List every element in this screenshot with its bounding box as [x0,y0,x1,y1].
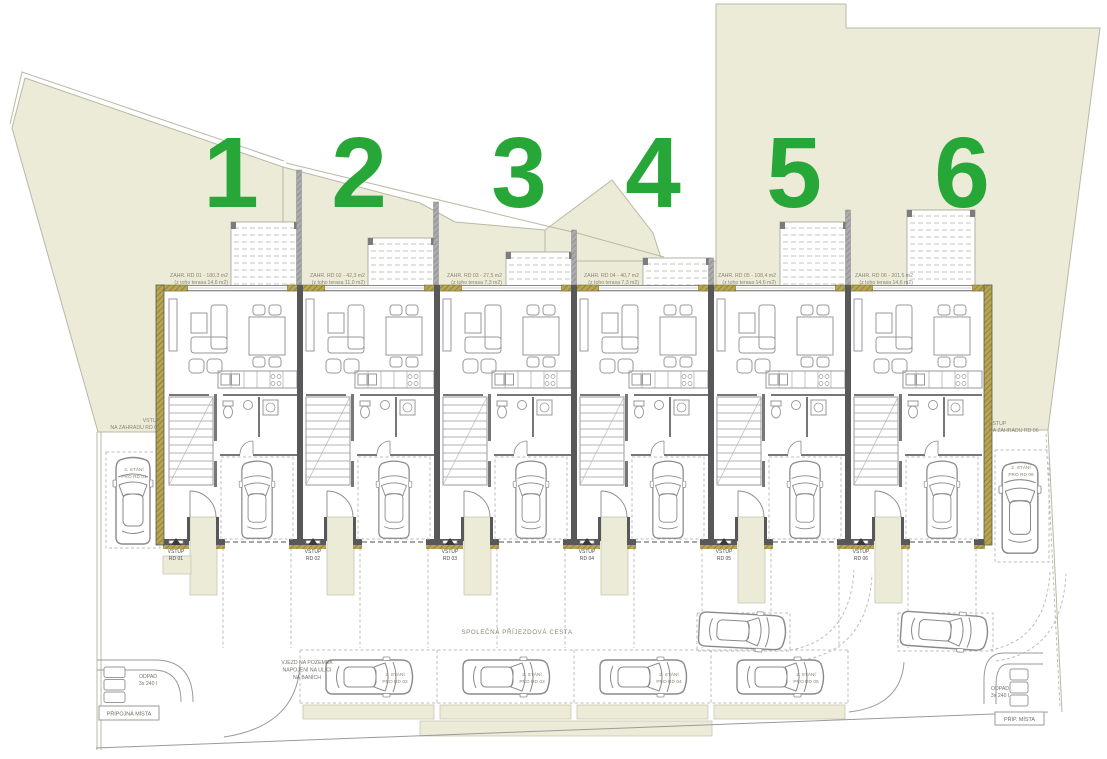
car-topview [650,461,686,538]
svg-text:RD 03: RD 03 [443,556,457,562]
svg-text:PRO RD 03: PRO RD 03 [519,679,545,685]
site-plan-canvas: SPOLEČNÁ PŘÍJEZDOVÁ CESTA PŘÍPOJNÁ MÍSTA… [0,0,1107,759]
svg-text:NAPOJENÍ NA ULICI: NAPOJENÍ NA ULICI [282,667,331,674]
waste-label-right: ODPAD3x 240 l [991,686,1009,699]
garden-area-label-rd-01: ZAHR. RD 01 - 180,3 m2(z toho terasa 14,… [170,273,228,286]
garden-area-label-rd-06: ZAHR. RD 06 - 201,5 m2(z toho terasa 14,… [855,273,913,286]
svg-text:2. STÁNÍ: 2. STÁNÍ [385,671,405,678]
svg-text:RD 01: RD 01 [169,556,183,562]
house-unit-rd-06 [848,285,985,603]
svg-text:ZAHR. RD 02 - 42,3 m2: ZAHR. RD 02 - 42,3 m2 [310,273,365,279]
svg-text:ZAHR. RD 06 - 201,5 m2: ZAHR. RD 06 - 201,5 m2 [855,273,913,279]
car-topview [698,609,786,653]
svg-text:VSTUP: VSTUP [305,549,322,555]
waste-bin [1010,682,1028,693]
svg-text:PRO RD 02: PRO RD 02 [382,679,408,685]
svg-text:(z toho terasa 7,3 m2): (z toho terasa 7,3 m2) [451,280,502,286]
svg-text:RD 05: RD 05 [717,556,731,562]
garden-fence [434,202,439,291]
waste-bin [1010,669,1028,680]
svg-text:ODPAD: ODPAD [139,674,157,680]
garden-area-label-rd-03: ZAHR. RD 03 - 27,5 m2(z toho terasa 7,3 … [447,273,502,286]
svg-text:PRO RD 01: PRO RD 01 [121,474,147,480]
svg-text:NA ZAHRADU RD 01: NA ZAHRADU RD 01 [110,425,160,431]
car-topview [787,461,823,538]
svg-text:3x 240 l: 3x 240 l [139,681,157,687]
floor-plan-drawing: SPOLEČNÁ PŘÍJEZDOVÁ CESTA PŘÍPOJNÁ MÍSTA… [0,0,1107,759]
svg-text:ZAHR. RD 04 - 40,7 m2: ZAHR. RD 04 - 40,7 m2 [584,273,639,279]
svg-text:VSTUP: VSTUP [716,549,733,555]
svg-text:RD 04: RD 04 [580,556,594,562]
terrace-deck-rd-01 [231,222,299,291]
svg-text:(z toho terasa 14,6 m2): (z toho terasa 14,6 m2) [174,280,228,286]
car-topview [239,461,275,538]
svg-text:VSTUP: VSTUP [442,549,459,555]
svg-text:PRO RD 05: PRO RD 05 [793,679,819,685]
svg-text:NA BANÍCH: NA BANÍCH [293,674,321,681]
house-unit-rd-05 [711,285,848,603]
garden-area-label-rd-04: ZAHR. RD 04 - 40,7 m2(z toho terasa 7,3 … [584,273,639,286]
car-topview [376,461,412,538]
waste-bin [104,692,125,703]
svg-text:(z toho terasa 14,6 m2): (z toho terasa 14,6 m2) [859,280,913,286]
svg-text:2. STÁNÍ: 2. STÁNÍ [659,671,679,678]
svg-text:NA ZAHRADU RD 06: NA ZAHRADU RD 06 [989,428,1039,434]
svg-text:VSTUP: VSTUP [579,549,596,555]
svg-text:PRO RD 06: PRO RD 06 [1008,472,1034,478]
garden-fence [297,170,302,291]
svg-text:ZAHR. RD 03 - 27,5 m2: ZAHR. RD 03 - 27,5 m2 [447,273,502,279]
svg-text:VSTUP: VSTUP [853,549,870,555]
car-topview [900,608,989,654]
connection-points-label-left: PŘÍPOJNÁ MÍSTA [107,710,152,718]
shared-driveway-label: SPOLEČNÁ PŘÍJEZDOVÁ CESTA [461,628,572,636]
plot-number-6[interactable]: 6 [934,117,990,229]
waste-bin [104,680,125,691]
svg-text:VJEZD NA POZEMEK: VJEZD NA POZEMEK [281,660,333,666]
plot-number-5[interactable]: 5 [766,117,822,229]
car-topview [513,461,549,538]
plot-number-4[interactable]: 4 [625,117,681,229]
svg-text:PRO RD 04: PRO RD 04 [656,679,682,685]
waste-label-left: ODPAD3x 240 l [139,674,157,687]
waste-bin [1010,695,1028,706]
connection-points-label-right: PŘÍP. MÍSTA [1004,715,1035,723]
svg-text:2. STÁNÍ: 2. STÁNÍ [124,466,144,473]
garden-fence [572,230,577,291]
plot-number-3[interactable]: 3 [491,117,547,229]
svg-text:ODPAD: ODPAD [991,686,1009,692]
svg-text:RD 02: RD 02 [306,556,320,562]
svg-text:VSTUP: VSTUP [143,418,161,424]
svg-text:ZAHR. RD 05 - 108,4 m2: ZAHR. RD 05 - 108,4 m2 [718,273,776,279]
plot-number-1[interactable]: 1 [203,117,259,229]
garden-area-label-rd-02: ZAHR. RD 02 - 42,3 m2(z toho terasa 11,0… [310,273,365,286]
svg-text:RD 06: RD 06 [854,556,868,562]
svg-text:VSTUP: VSTUP [989,421,1007,427]
garden-fence [846,210,851,291]
terrace-deck-rd-02 [368,238,436,291]
svg-text:2. STÁNÍ: 2. STÁNÍ [1011,464,1031,471]
svg-text:2. STÁNÍ: 2. STÁNÍ [522,671,542,678]
plot-number-2[interactable]: 2 [331,117,387,229]
svg-text:(z toho terasa 11,0 m2): (z toho terasa 11,0 m2) [312,280,366,286]
waste-bin [104,667,125,678]
svg-text:(z toho terasa 7,3 m2): (z toho terasa 7,3 m2) [588,280,639,286]
car-topview [924,461,960,538]
svg-text:3x 240 l: 3x 240 l [991,693,1009,699]
svg-text:ZAHR. RD 01 - 180,3 m2: ZAHR. RD 01 - 180,3 m2 [170,273,228,279]
terrace-deck-rd-05 [780,222,848,291]
svg-text:2. STÁNÍ: 2. STÁNÍ [796,671,816,678]
svg-text:(z toho terasa 14,6 m2): (z toho terasa 14,6 m2) [722,280,776,286]
garden-area-label-rd-05: ZAHR. RD 05 - 108,4 m2(z toho terasa 14,… [718,273,776,286]
svg-text:VSTUP: VSTUP [168,549,185,555]
